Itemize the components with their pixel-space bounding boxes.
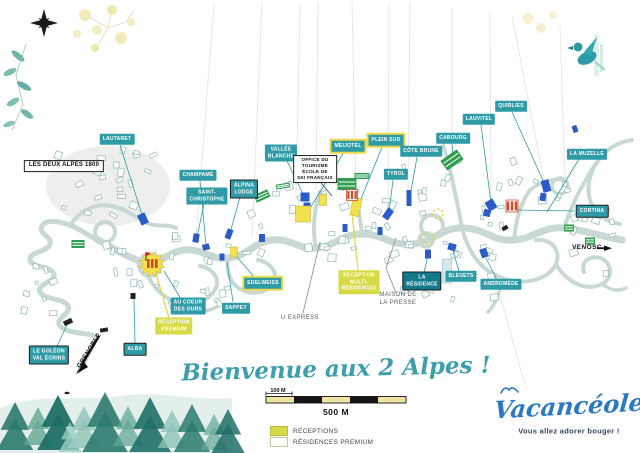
map-label-maison-de-la-presse: MAISON DE LA PRESSE [379,292,416,308]
map-label-venosc: VENOSC [572,244,602,252]
scale-minor-label: 100 M [270,388,285,394]
map-label-alpina-lodge: ALPINA LODGE [230,180,258,199]
map-label-u-express: U EXPRESS [281,315,319,323]
map-label-sappey: SAPPEY [222,303,250,314]
map-label-reception-multi: RÉCEPTION MULTI- RÉSIDENCES [338,270,379,294]
scale-major-label: 500 M [323,407,349,417]
map-canvas: LAUTARETCHAMPAMÉSAINT- CHRISTOPHEALPINA … [0,0,640,453]
legend-swatch-receptions [270,426,288,436]
map-label-reception-premium: RÉCEPTION PREMIUM [155,318,192,335]
map-label-cabourg: CABOURG [436,133,470,144]
legend-label-receptions: RÉCEPTIONS [293,428,338,435]
logo-tagline: Vous allez adorer bouger ! [518,427,619,436]
map-label-au-coeur-des-ours: AU COEUR DES OURS [171,298,206,315]
map-label-quirlies: QUIRLIES [495,101,527,112]
map-label-meijotel: MEIJOTEL [329,139,366,154]
map-label-alba: ALBA [124,343,147,356]
map-label-la-muzelle: LA MUZELLE [567,149,607,160]
map-label-saint-christophe: SAINT- CHRISTOPHE [186,188,227,205]
vacanceole-logo: Vacancéole Vous allez adorer bouger ! [500,384,638,446]
map-label-edelweiss: EDELWEISS [242,276,283,291]
map-label-champame: CHAMPAMÉ [179,170,216,181]
map-label-bleuets: BLEUETS [445,271,476,282]
legend-row-receptions: RÉCEPTIONS [270,426,373,436]
map-label-la-residence: LA RÉSIDENCE [402,272,441,291]
map-label-les-deux-alpes-1800: LES DEUX ALPES 1800 [24,160,104,172]
map-label-le-goleon-val-ecrins: LE GOLÉON VAL ÉCRINS [29,346,69,365]
map-label-grenoble: GRENOBLE [76,332,104,370]
map-label-office-tourisme: OFFICE DU TOURISME ÉCOLE DE SKI FRANÇAIS [293,155,337,183]
legend: RÉCEPTIONS RÉSIDENCES PREMIUM [270,426,373,448]
map-label-lauvitel: LAUVITEL [463,114,495,125]
map-label-cortina: CORTINA [576,205,609,218]
map-label-cote-brune: CÔTE BRUNE [400,146,442,157]
map-label-andromede: ANDROMÈDE [480,279,521,290]
legend-row-premium: RÉSIDENCES PREMIUM [270,437,373,447]
legend-label-premium: RÉSIDENCES PREMIUM [293,439,373,446]
map-label-tyrol: TYROL [384,169,408,180]
map-label-lautaret: LAUTARET [100,134,135,145]
legend-swatch-premium [270,437,288,447]
